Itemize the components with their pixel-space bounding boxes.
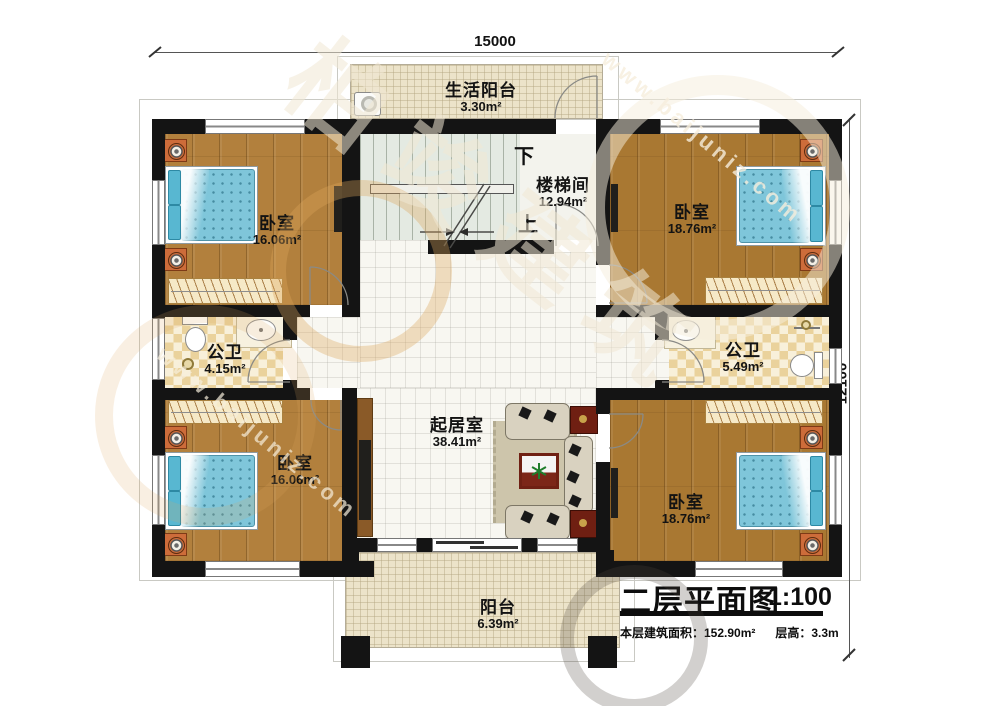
table-lamp-icon [579, 415, 587, 423]
watermark-ring [560, 565, 708, 706]
lamp-icon [168, 252, 185, 269]
toilet-symbol [814, 352, 823, 379]
stair-direction-down-label: 下 [514, 140, 534, 169]
pillow-symbol [168, 170, 181, 205]
nightstand-symbol [800, 533, 823, 556]
window-symbol [152, 180, 165, 245]
wall [655, 380, 669, 388]
floor-plan-canvas: 15000 12100 [0, 0, 1000, 706]
bed-symbol [165, 166, 258, 244]
floor-height-stat: 层高：3.3m [775, 624, 838, 641]
nightstand-symbol [800, 426, 823, 449]
window-symbol [205, 119, 305, 134]
sofa-top-section [505, 403, 570, 440]
nightstand-symbol [164, 533, 187, 556]
window-symbol [537, 538, 578, 552]
plant-icon [531, 463, 547, 479]
side-table-symbol [570, 406, 598, 434]
stair-direction-up-label: 上 [518, 208, 538, 237]
tv-symbol [611, 468, 618, 518]
wardrobe-symbol [705, 400, 823, 424]
bed-symbol [736, 452, 826, 530]
dimension-line-top [155, 52, 838, 53]
lamp-icon [804, 537, 821, 554]
wall [342, 388, 357, 561]
watermark-ring [585, 75, 850, 340]
nightstand-symbol [164, 139, 187, 162]
window-symbol [695, 561, 783, 577]
lamp-icon [168, 537, 185, 554]
tv-symbol [359, 440, 371, 520]
pillow-symbol [810, 456, 823, 491]
wall [596, 400, 610, 414]
toilet-symbol [790, 354, 814, 377]
pillow-symbol [810, 491, 823, 526]
lamp-icon [168, 143, 185, 160]
sliding-door-symbol [432, 538, 522, 552]
balcony-column [600, 550, 614, 562]
side-table-symbol [570, 510, 598, 538]
towel-ring-icon [801, 320, 811, 330]
window-symbol [829, 348, 842, 384]
wall [596, 388, 842, 400]
plan-scale: 1:100 [768, 583, 832, 612]
window-symbol [205, 561, 300, 577]
watermark-ring [95, 305, 316, 526]
pillow-symbol [168, 205, 181, 240]
sofa-bottom-section [505, 505, 570, 540]
dimension-top-value: 15000 [455, 33, 535, 50]
washing-machine-icon [354, 92, 381, 116]
nightstand-symbol [164, 248, 187, 271]
window-symbol [829, 455, 842, 525]
table-lamp-icon [579, 519, 587, 527]
lamp-icon [804, 430, 821, 447]
balcony-column [345, 550, 359, 562]
wall [596, 462, 610, 561]
watermark-ring [270, 180, 452, 362]
room-life-balcony-floor [350, 64, 603, 119]
window-symbol [377, 538, 417, 552]
balcony-column [341, 636, 370, 668]
wardrobe-symbol [168, 278, 283, 304]
